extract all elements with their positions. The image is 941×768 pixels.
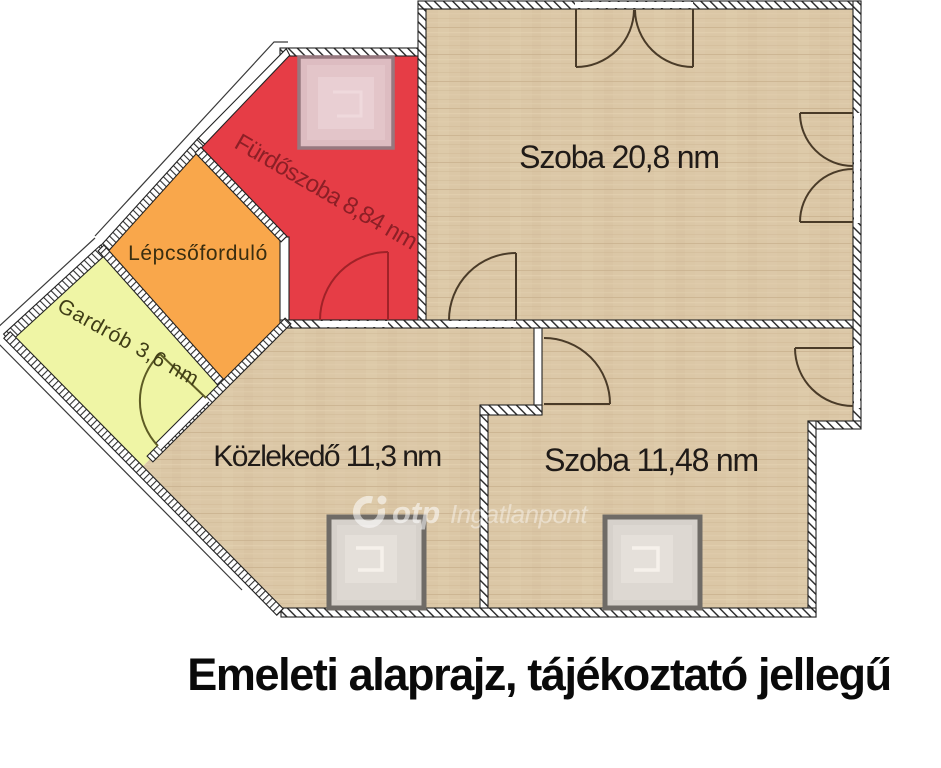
svg-text:Emeleti alaprajz, tájékoztató: Emeleti alaprajz, tájékoztató jellegű (187, 649, 890, 700)
svg-text:Lépcsőforduló: Lépcsőforduló (128, 242, 268, 265)
svg-text:Közlekedő 11,3 nm: Közlekedő 11,3 nm (213, 440, 441, 473)
svg-text:otp: otp (392, 495, 440, 530)
svg-text:Ingatlanpont: Ingatlanpont (450, 499, 589, 529)
svg-text:Szoba 11,48 nm: Szoba 11,48 nm (544, 442, 758, 478)
svg-text:Szoba 20,8 nm: Szoba 20,8 nm (519, 139, 719, 175)
